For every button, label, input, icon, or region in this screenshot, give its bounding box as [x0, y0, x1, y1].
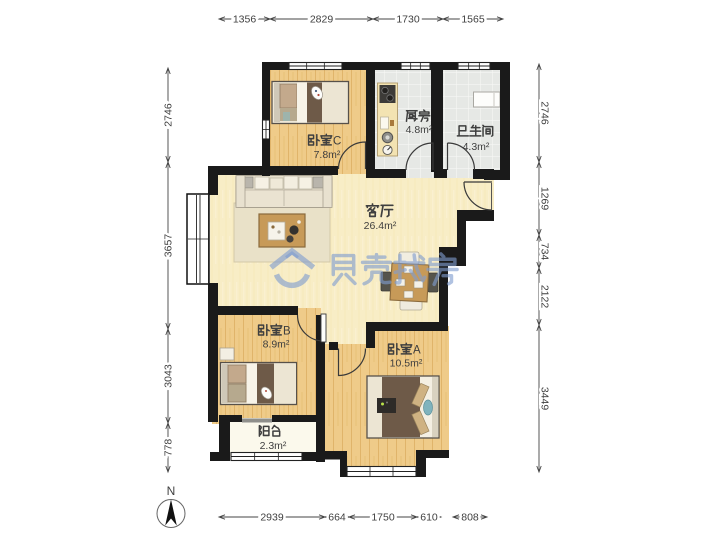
- svg-text:734: 734: [539, 243, 551, 261]
- svg-text:4.3m²: 4.3m²: [463, 141, 490, 153]
- svg-text:1269: 1269: [539, 187, 551, 211]
- svg-text:4.8m²: 4.8m²: [406, 124, 433, 136]
- svg-text:2829: 2829: [310, 14, 334, 26]
- svg-text:1750: 1750: [371, 512, 395, 524]
- svg-text:2.3m²: 2.3m²: [260, 440, 287, 452]
- svg-text:778: 778: [163, 439, 175, 457]
- svg-text:808: 808: [461, 512, 479, 524]
- svg-text:1565: 1565: [461, 14, 485, 26]
- svg-text:B: B: [283, 326, 291, 338]
- svg-text:3449: 3449: [539, 387, 551, 411]
- svg-text:2746: 2746: [539, 101, 551, 125]
- svg-text:1356: 1356: [233, 14, 257, 26]
- svg-text:1730: 1730: [396, 14, 420, 26]
- svg-text:3043: 3043: [163, 364, 175, 388]
- svg-text:C: C: [333, 136, 341, 148]
- svg-text:7.8m²: 7.8m²: [314, 149, 341, 161]
- svg-text:26.4m²: 26.4m²: [364, 220, 397, 232]
- svg-text:8.9m²: 8.9m²: [263, 339, 290, 351]
- svg-text:664: 664: [328, 512, 346, 524]
- svg-text:2746: 2746: [163, 103, 175, 127]
- svg-text:3657: 3657: [163, 234, 175, 258]
- svg-text:N: N: [167, 484, 176, 498]
- svg-text:2939: 2939: [260, 512, 284, 524]
- svg-text:2122: 2122: [539, 285, 551, 309]
- svg-text:A: A: [413, 345, 421, 357]
- svg-text:10.5m²: 10.5m²: [390, 358, 423, 370]
- svg-text:610: 610: [420, 512, 438, 524]
